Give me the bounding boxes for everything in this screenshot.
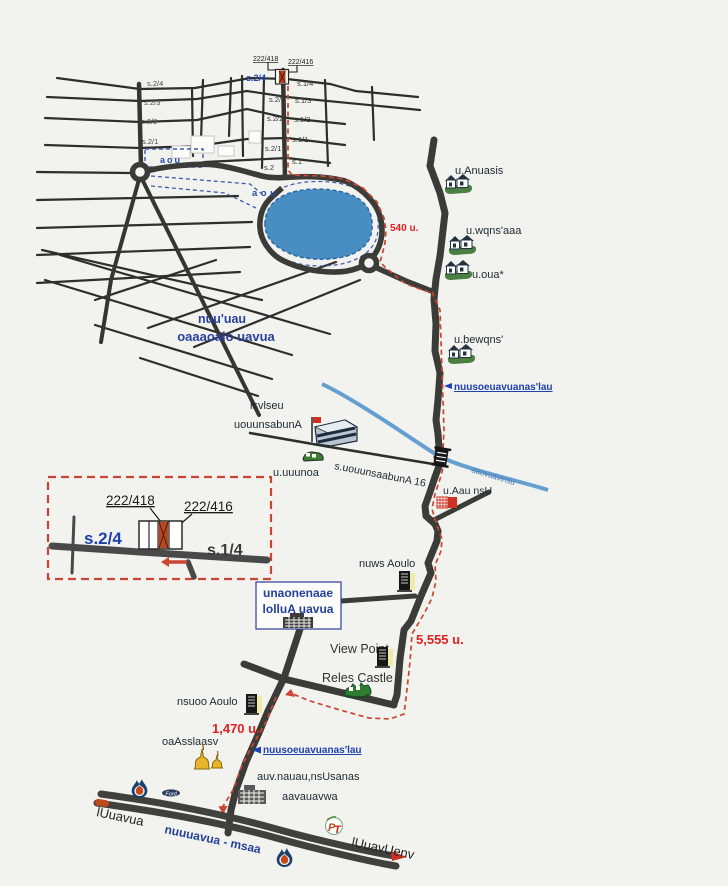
svg-text:oaAsslaasv: oaAsslaasv	[162, 736, 219, 748]
svg-text:aavauavwa: aavauavwa	[282, 791, 339, 803]
svg-text:222/416: 222/416	[288, 59, 313, 66]
svg-text:Reles Castle: Reles Castle	[322, 671, 393, 685]
svg-text:222/418: 222/418	[253, 56, 278, 63]
svg-text:aou: aou	[252, 188, 279, 199]
svg-text:s.1/2: s.1/2	[294, 115, 310, 124]
svg-text:auv.nauau,nsUsanas: auv.nauau,nsUsanas	[257, 771, 360, 783]
svg-text:nuusoeuavuanas'lau: nuusoeuavuanas'lau	[263, 745, 362, 756]
svg-text:s.2/2: s.2/2	[267, 114, 283, 123]
svg-text:uouunsabunA: uouunsabunA	[234, 419, 303, 431]
svg-text:nsuoo Aoulo: nsuoo Aoulo	[177, 696, 238, 708]
svg-text:5,555 u.: 5,555 u.	[416, 632, 464, 647]
svg-text:u.uuunoa: u.uuunoa	[273, 467, 320, 479]
svg-text:s.2/1: s.2/1	[265, 144, 281, 153]
svg-text:nuusoeuavuanas'lau: nuusoeuavuanas'lau	[454, 382, 553, 393]
svg-text:s.1: s.1	[292, 157, 302, 166]
svg-text:s.1/4: s.1/4	[297, 79, 313, 88]
svg-text:s.1/1: s.1/1	[292, 135, 308, 144]
svg-text:s.2/2: s.2/2	[141, 117, 157, 126]
svg-text:222/418: 222/418	[106, 493, 155, 508]
svg-text:s.2/3: s.2/3	[269, 95, 285, 104]
svg-text:540 u.: 540 u.	[390, 223, 419, 234]
svg-text:s.2/4: s.2/4	[84, 529, 122, 548]
svg-text:nuws Aoulo: nuws Aoulo	[359, 558, 415, 570]
svg-text:u.oua*: u.oua*	[472, 269, 505, 281]
svg-text:s.1/3: s.1/3	[295, 96, 311, 105]
svg-text:s.2/4: s.2/4	[246, 73, 266, 83]
svg-text:222/416: 222/416	[184, 499, 233, 514]
svg-text:s.2/4: s.2/4	[147, 79, 163, 88]
svg-text:oaaaoalo uavua: oaaaoalo uavua	[177, 329, 275, 344]
svg-text:Ford: Ford	[165, 792, 177, 798]
svg-text:u.Aau nsU: u.Aau nsU	[443, 485, 492, 497]
svg-text:s.2/1: s.2/1	[142, 137, 158, 146]
svg-text:nuu'uau: nuu'uau	[198, 312, 246, 326]
svg-text:s.2/3: s.2/3	[144, 98, 160, 107]
svg-text:u.wqns'aaa: u.wqns'aaa	[466, 225, 522, 237]
svg-text:s.2: s.2	[264, 163, 274, 172]
svg-text:lsvlseu: lsvlseu	[250, 400, 284, 412]
svg-text:u.bewqns': u.bewqns'	[454, 334, 503, 346]
svg-text:1,470 u.: 1,470 u.	[212, 721, 260, 736]
svg-text:unaonenaae: unaonenaae	[263, 586, 333, 600]
svg-text:s.1/4: s.1/4	[207, 542, 243, 559]
